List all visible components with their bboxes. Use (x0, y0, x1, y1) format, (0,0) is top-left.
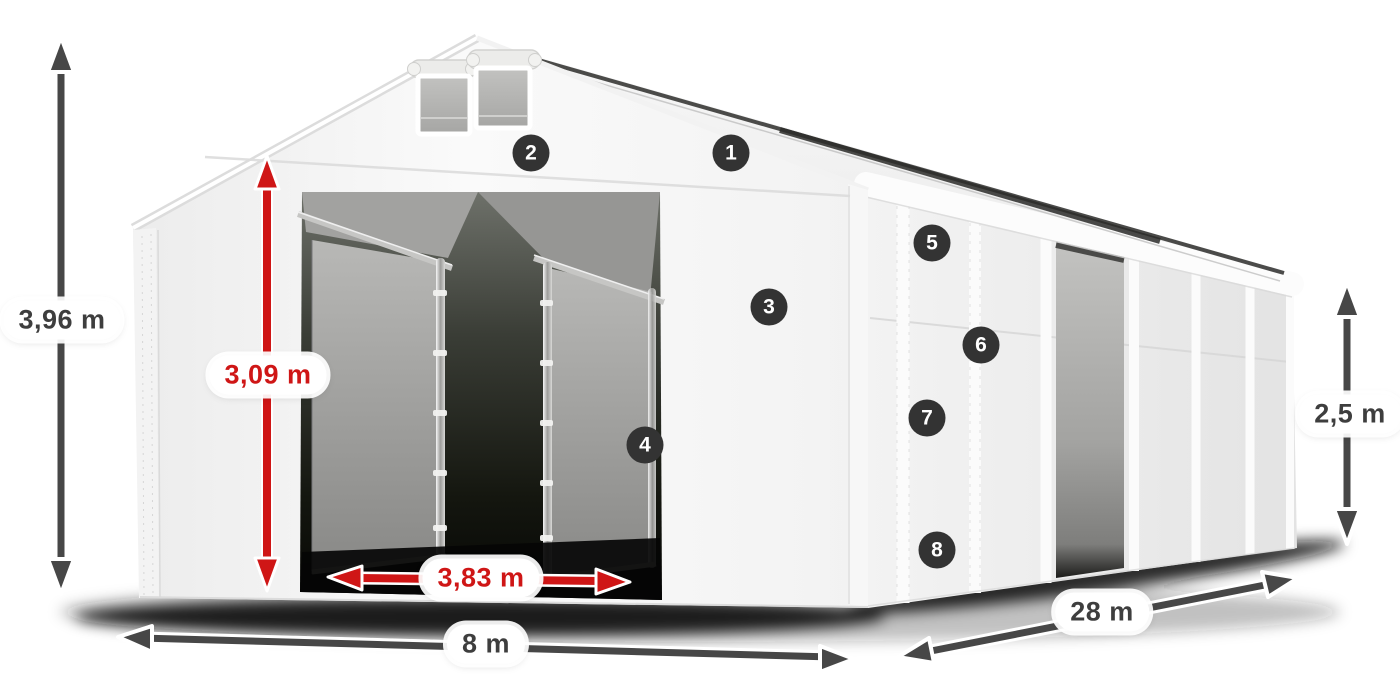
gable-window-right (467, 50, 542, 128)
marker-4[interactable]: 4 (627, 427, 664, 464)
dimension-label-door-height: 3,09 m (209, 355, 326, 394)
marker-6[interactable]: 6 (963, 327, 1000, 364)
marker-7[interactable]: 7 (909, 400, 946, 437)
marker-8[interactable]: 8 (919, 532, 956, 569)
dimension-label-length: 28 m (1055, 592, 1149, 631)
marker-5[interactable]: 5 (914, 225, 951, 262)
marker-1[interactable]: 1 (713, 135, 750, 172)
gable-window-left (408, 60, 479, 134)
product-diagram: 3,96 m 3,09 m 3,83 m 8 m 28 m 2,5 m 1 2 … (0, 0, 1400, 700)
dimension-label-side-height: 2,5 m (1299, 394, 1400, 433)
side-door-opening (1056, 240, 1124, 578)
marker-2[interactable]: 2 (513, 135, 550, 172)
tent-illustration (0, 0, 1400, 700)
inner-door-panel-right (534, 255, 664, 580)
dimension-label-total-height: 3,96 m (3, 300, 120, 339)
marker-3[interactable]: 3 (751, 289, 788, 326)
dimension-label-front-width: 8 m (447, 624, 525, 663)
inner-door-panel-left (298, 212, 452, 574)
dimension-label-door-width: 3,83 m (422, 558, 539, 597)
front-entrance-opening (298, 192, 664, 600)
